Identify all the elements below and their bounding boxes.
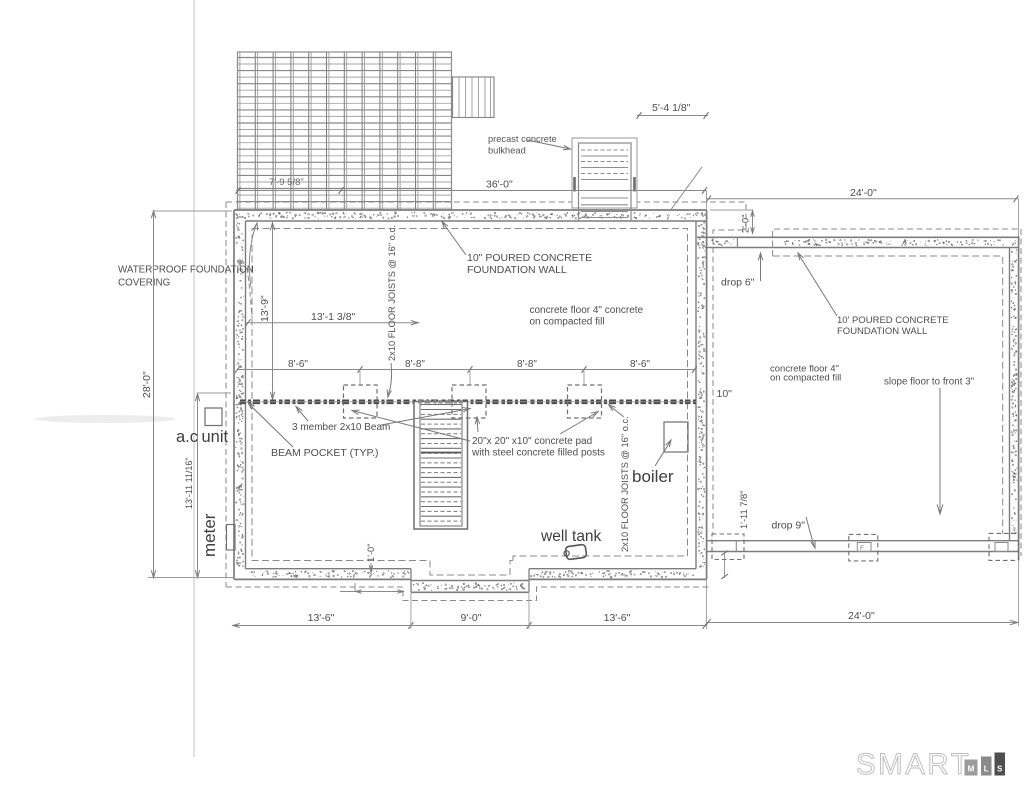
- svg-text:10' POURED CONCRETE: 10' POURED CONCRETE: [837, 315, 949, 326]
- svg-text:2x10 FLOOR JOISTS @ 16" o.c.: 2x10 FLOOR JOISTS @ 16" o.c.: [387, 225, 397, 361]
- svg-text:2x10 FLOOR JOISTS @ 16" o.c.: 2x10 FLOOR JOISTS @ 16" o.c.: [620, 416, 630, 552]
- svg-text:BEAM POCKET (TYP.): BEAM POCKET (TYP.): [271, 447, 379, 459]
- svg-text:13'-1 3/8": 13'-1 3/8": [311, 311, 356, 323]
- svg-text:on compacted fill: on compacted fill: [770, 373, 841, 384]
- svg-text:FOUNDATION WALL: FOUNDATION WALL: [837, 326, 927, 337]
- svg-text:8'-8": 8'-8": [405, 359, 425, 370]
- svg-text:drop 6": drop 6": [721, 277, 755, 289]
- svg-text:3 member 2x10 Beam: 3 member 2x10 Beam: [292, 422, 390, 433]
- svg-text:WATERPROOF FOUNDATION: WATERPROOF FOUNDATION: [118, 265, 254, 276]
- svg-text:5'-4 1/8": 5'-4 1/8": [652, 102, 691, 114]
- svg-text:24'-0": 24'-0": [850, 187, 877, 199]
- svg-text:a.c: a.c: [176, 428, 198, 446]
- svg-text:bulkhead: bulkhead: [488, 146, 526, 156]
- svg-text:M: M: [968, 765, 975, 774]
- svg-text:2'-0": 2'-0": [741, 214, 751, 233]
- svg-text:well tank: well tank: [540, 528, 602, 545]
- svg-text:slope floor to front 3": slope floor to front 3": [884, 377, 975, 388]
- svg-text:7'-9 5/8": 7'-9 5/8": [269, 177, 304, 188]
- svg-text:drop 9": drop 9": [772, 520, 806, 532]
- svg-text:9'-0": 9'-0": [461, 612, 482, 624]
- svg-text:1'-0": 1'-0": [366, 543, 376, 562]
- svg-text:24'-0": 24'-0": [848, 610, 875, 622]
- svg-text:13'-6": 13'-6": [604, 612, 631, 624]
- svg-text:20"x 20" x10" concrete pad: 20"x 20" x10" concrete pad: [472, 436, 592, 447]
- svg-text:8'-8": 8'-8": [517, 359, 537, 370]
- svg-text:10" POURED CONCRETE: 10" POURED CONCRETE: [467, 252, 592, 264]
- svg-text:8'-6": 8'-6": [288, 359, 308, 370]
- svg-text:FOUNDATION WALL: FOUNDATION WALL: [467, 264, 567, 276]
- svg-text:S: S: [997, 765, 1003, 774]
- svg-text:COVERING: COVERING: [118, 278, 170, 289]
- svg-text:10": 10": [717, 388, 733, 400]
- svg-text:1'-11 7/8": 1'-11 7/8": [739, 491, 749, 530]
- svg-text:L: L: [984, 765, 989, 774]
- svg-text:13'-9": 13'-9": [259, 295, 271, 322]
- svg-text:13'-6": 13'-6": [308, 612, 335, 624]
- svg-text:precast concrete: precast concrete: [488, 134, 557, 144]
- svg-text:concrete floor 4" concrete: concrete floor 4" concrete: [530, 305, 644, 316]
- svg-text:on compacted fill: on compacted fill: [530, 317, 605, 328]
- svg-text:boiler: boiler: [632, 467, 674, 486]
- svg-text:F: F: [860, 545, 864, 552]
- svg-text:13'-11 11/16": 13'-11 11/16": [184, 457, 194, 509]
- svg-text:36'-0": 36'-0": [486, 179, 513, 191]
- svg-text:28'-0": 28'-0": [141, 371, 153, 398]
- svg-text:with steel concrete filled pos: with steel concrete filled posts: [471, 448, 605, 459]
- svg-text:SMART: SMART: [856, 748, 971, 781]
- svg-text:unit: unit: [202, 428, 229, 446]
- svg-text:meter: meter: [200, 513, 219, 557]
- svg-text:8'-6": 8'-6": [630, 359, 650, 370]
